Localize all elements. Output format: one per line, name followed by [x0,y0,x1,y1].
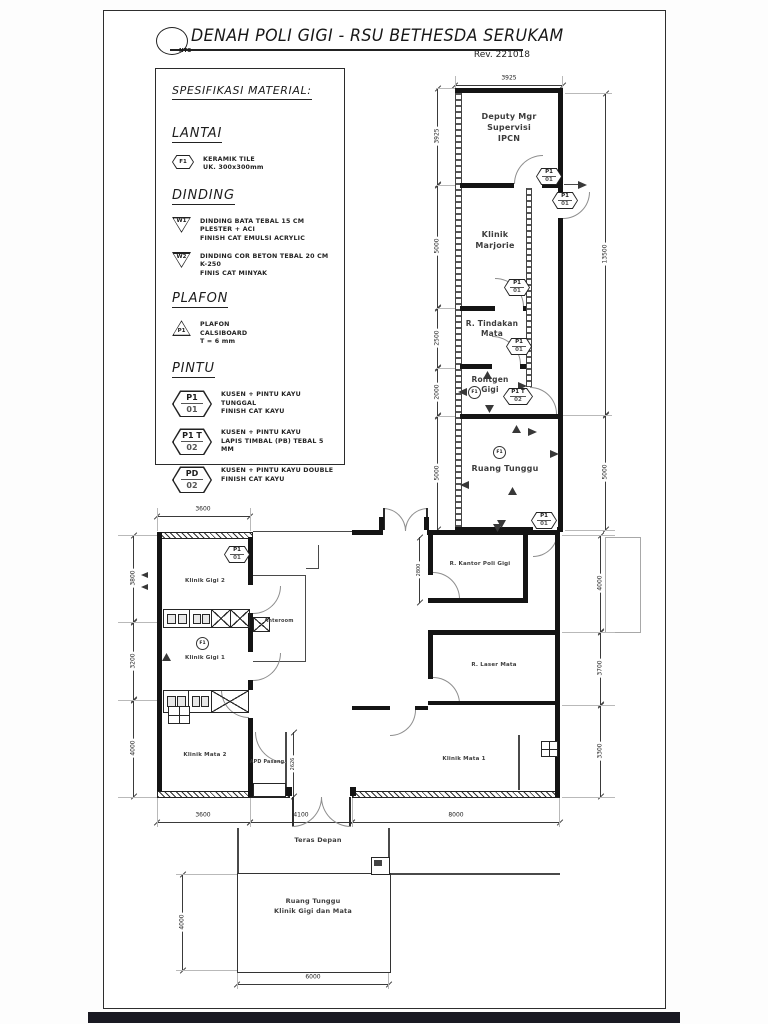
wall [523,306,526,311]
extension-line [176,874,237,875]
dim-wing-left-5: 5000 [434,463,441,482]
extension-line [237,973,238,989]
electrical-panel [541,741,558,757]
wash-basin [168,706,190,724]
dim-wing-right-1: 13500 [602,242,609,265]
wall-w1-tag-icon: W1 [172,217,191,233]
drawing-title: DENAH POLI GIGI - RSU BETHESDA SERUKAM [191,26,563,45]
dim-lower-left-1: 3800 [130,568,137,587]
dim-lower-bottom-1: 3600 [193,812,212,819]
spec-section-lantai: LANTAI [172,126,222,143]
wall-line [253,531,352,532]
door-p1t-tag-icon: P1 T02 [172,428,212,455]
dim-line [157,822,250,823]
extension-line [250,508,251,531]
wall [352,706,390,710]
door-tag-p1-01: P101 [536,168,562,185]
wall [460,414,563,419]
spec-section-plafon: PLAFON [172,291,228,308]
title-scale-note: NTS [179,48,191,54]
door-tag-p1-01: P101 [506,338,532,355]
dim-wing-left-1: 3925 [434,126,441,145]
wall [428,635,433,679]
wall [460,183,514,188]
label-teras-depan: Teras Depan [283,836,353,844]
spec-item-door-p1t: P1 T02 KUSEN + PINTU KAYULAPIS TIMBAL (P… [172,428,336,455]
cabinet-x [211,690,249,713]
apd-bench [253,783,286,797]
spec-section-dinding: DINDING [172,188,235,205]
wall [520,364,526,369]
wall [428,630,560,635]
extension-line [565,530,615,531]
extension-line [436,416,457,417]
spec-item-ceiling: P1 PLAFONCALSIBOARDT = 6 mm [172,320,336,346]
extension-line [352,798,353,827]
dim-lower-top: 3600 [193,506,212,513]
spec-section-pintu: PINTU [172,361,215,378]
room-label-anteroom: Anteroom [256,618,302,624]
door-tag-p1-01: P101 [531,512,557,529]
teras-line [237,828,239,874]
material-spec-legend: SPESIFIKASI MATERIAL: LANTAI F1 KERAMIK … [155,68,345,465]
cabinet-x [230,609,250,628]
door-tag-p1-01: P101 [224,546,250,563]
room-label-klinik-mata-2: Klinik Mata 2 [167,752,243,758]
anteroom-wall [305,575,306,662]
bottom-dark-bar [88,1012,680,1023]
wall [248,680,253,690]
extension-line [157,508,158,531]
wall [352,530,383,535]
dim-lower-left-3: 4000 [130,738,137,757]
wall [428,598,528,603]
partition-line [518,735,520,790]
extension-line [250,798,251,827]
extension-line [562,535,615,536]
door-post [350,787,356,796]
wall [455,88,563,93]
extension-line [118,535,157,536]
spec-item-wall-2: W2 DINDING COR BETON TEBAL 20 CMK-250FIN… [172,252,336,278]
dim-line [157,516,250,517]
extension-line [562,632,615,633]
cabinet-x [211,609,231,628]
wall [415,706,428,710]
extension-line [565,93,612,94]
door-tag-p1-01: P101 [504,279,530,296]
dim-wing-left-3: 2500 [434,328,441,347]
dim-line [237,984,389,985]
room-label-tindakan-mata: R. Tindakan Mata [452,319,532,339]
room-label-klinik-gigi-2: Klinik Gigi 2 [167,578,243,584]
dim-wing-left-4: 2000 [434,382,441,401]
wall [248,537,253,585]
floor-tag-icon: F1 [172,155,194,169]
extension-line [559,798,560,827]
room-label-klinik-gigi-1: Klinik Gigi 1 [167,655,243,661]
anteroom-wall [253,575,306,576]
room-label-ruang-tunggu: Ruang Tunggu [459,464,551,473]
door-post [379,517,384,530]
extension-line [436,88,457,89]
room-label-laser-mata: R. Laser Mata [452,662,536,668]
dim-lower-bottom-3: 8000 [446,812,465,819]
door-tag-p1t-02: P1 T02 [503,388,533,405]
wall [427,530,560,535]
room-label-klinik-marjorie: Klinik Marjorie [459,229,531,251]
wall-w2-tag-icon: W2 [172,252,191,268]
floor-tag-f1: F1 [196,637,209,650]
spec-item-door-pd: PD02 KUSEN + PINTU KAYU DOUBLEFINISH CAT… [172,466,336,493]
wall [157,532,162,797]
floor-tag-f1: F1 [468,386,481,399]
dim-lower-left-2: 3200 [130,651,137,670]
dim-line [352,822,560,823]
door-post [286,787,292,796]
wall-masonry [352,791,560,798]
spec-heading: SPESIFIKASI MATERIAL: [172,84,312,100]
dim-wing-top: 3925 [499,75,518,82]
extension-line [562,797,615,798]
extension-line [118,700,157,701]
dental-unit-counter [188,690,212,713]
spec-item-wall-1: W1 DINDING BATA TEBAL 15 CMPLESTER + ACI… [172,217,336,243]
room-label-apd-pasang: APD Pasang [248,760,286,765]
anteroom-wall [318,545,319,569]
extension-line [436,308,457,309]
wall [428,701,560,705]
dim-kantor-height: 2800 [416,562,422,579]
room-label-klinik-mata-1: Klinik Mata 1 [418,756,510,762]
dim-block-left: 4000 [179,912,186,931]
dim-apd-height: 2626 [290,756,296,773]
wall [460,306,495,311]
dim-lower-right-3: 3300 [597,741,604,760]
room-label-deputy: Deputy Mgr Supervisi IPCN [461,111,557,144]
dim-wing-right-2: 5000 [602,462,609,481]
wall [460,364,492,369]
dim-lower-bottom-2: 4100 [291,812,310,819]
room-label-kantor-poli-gigi: R. Kantor Poli Gigi [436,561,524,567]
dim-block-bottom: 6000 [303,974,322,981]
revision-label: Rev. 221018 [448,50,530,60]
adjacent-building-outline [605,537,641,633]
extension-line [176,970,237,971]
wall [523,535,528,603]
waiting-room-block [237,873,391,973]
extension-line [388,973,389,989]
extension-line [118,622,157,623]
dim-wing-left-2: 5000 [434,236,441,255]
door-pd-tag-icon: PD02 [172,466,212,493]
floor-tag-f1: F1 [493,446,506,459]
extension-line [157,798,158,827]
dental-unit-counter [189,609,212,628]
extension-line [436,368,457,369]
door-tag-p1-01: P101 [552,192,578,209]
room-label-ruang-tunggu-bawah: Ruang Tunggu Klinik Gigi dan Mata [241,896,385,916]
extension-line [118,797,157,798]
extension-line [436,185,457,186]
door-post [424,517,429,530]
wall-masonry [157,532,253,539]
section-arrow-stem [564,184,579,185]
dental-unit-counter [163,609,190,628]
drawing-sheet: { "title": { "text": "DENAH POLI GIGI - … [0,0,768,1024]
extension-line [562,705,615,706]
column-symbol [371,857,390,875]
wall [558,218,563,532]
spec-item-floor: F1 KERAMIK TILEUK. 300x300mm [172,155,336,173]
door-leaf [349,797,351,826]
door-leaf [292,797,294,826]
dim-lower-right-1: 4000 [597,573,604,592]
dim-lower-right-2: 3700 [597,658,604,677]
spec-item-door-p1: P101 KUSEN + PINTU KAYU TUNGGALFINISH CA… [172,390,336,417]
dim-line [455,85,563,86]
wall [428,535,433,575]
door-p1-tag-icon: P101 [172,390,212,417]
ceiling-p1-tag-icon: P1 [172,320,191,336]
